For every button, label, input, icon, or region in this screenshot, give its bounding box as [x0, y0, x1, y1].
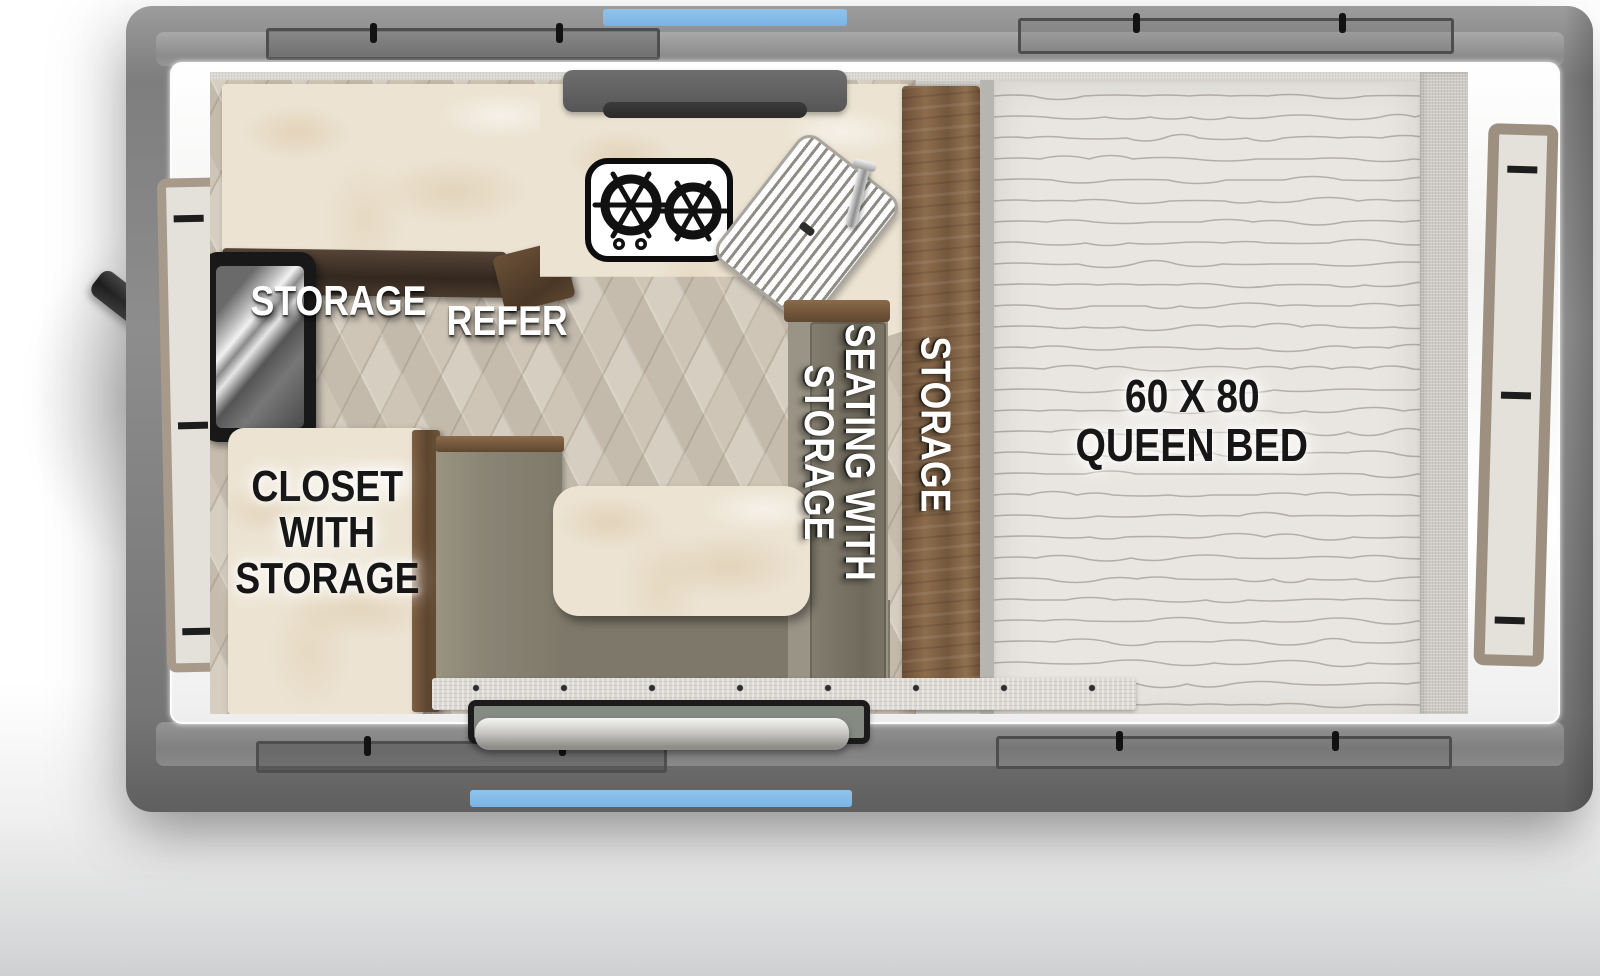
- kitchen-window-hood: [563, 70, 847, 112]
- storage-cabinet-countertop: [222, 84, 562, 258]
- dinette-bench-left: [436, 448, 562, 684]
- top-wall-window-right: [1018, 18, 1454, 54]
- label-refer: REFER: [412, 300, 602, 341]
- dinette-bench-left-wood-cap: [436, 436, 564, 452]
- label-storage-side: STORAGE: [915, 314, 956, 534]
- roof-accent-strip-top: [603, 9, 847, 26]
- interior-wall-right: [1420, 72, 1468, 714]
- stove-icon: [585, 158, 733, 262]
- roof-accent-strip-bottom: [470, 790, 852, 807]
- label-closet-with-storage: CLOSET WITH STORAGE: [216, 464, 438, 601]
- label-seating-with-storage: SEATING WITH STORAGE: [799, 282, 881, 622]
- entry-door-handle: [475, 718, 849, 750]
- label-queen-bed: 60 X 80 QUEEN BED: [1042, 372, 1342, 470]
- top-wall-window-left: [266, 28, 660, 60]
- camper-body: STORAGE REFER CLOSET WITH STORAGE SEATIN…: [126, 6, 1593, 812]
- bottom-wall-window-right: [996, 736, 1452, 769]
- exterior-wall-right-shade: [1563, 6, 1593, 812]
- side-window-right: [1473, 123, 1558, 667]
- interior-floorplan: STORAGE REFER CLOSET WITH STORAGE SEATIN…: [210, 72, 1468, 714]
- dinette-table: [553, 486, 810, 616]
